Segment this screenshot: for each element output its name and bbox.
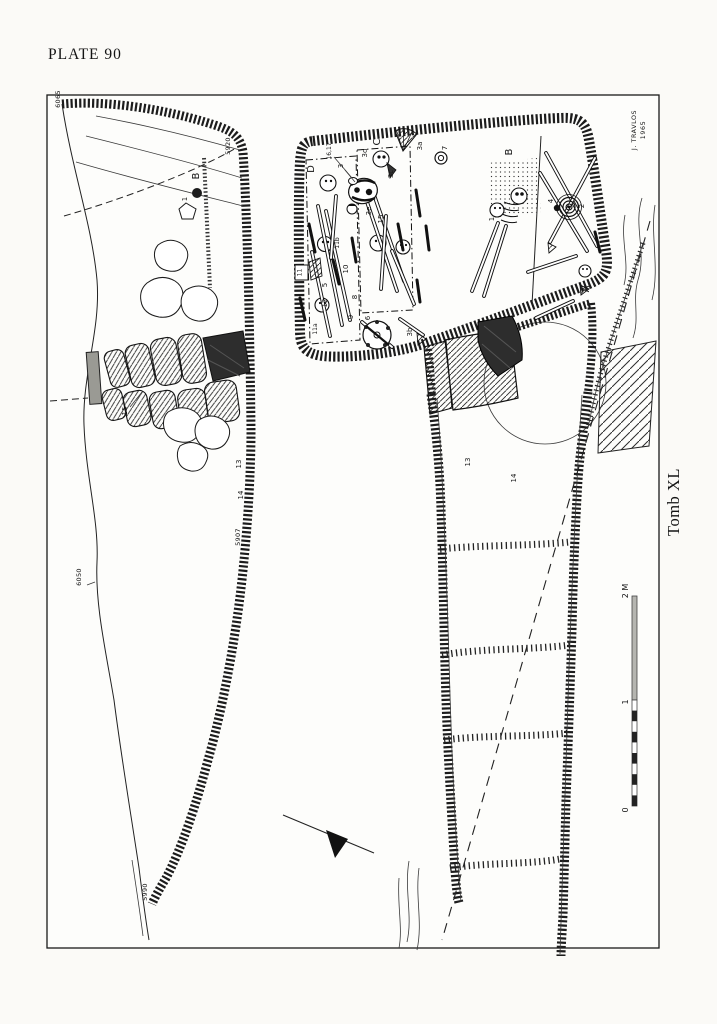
label-find-2: 2 <box>578 204 586 208</box>
label-area-a: A <box>581 285 592 292</box>
label-find-13-upper: 13 <box>235 460 243 469</box>
label-find-11b: 11b <box>334 237 341 249</box>
label-find-3d: 3d <box>361 149 369 158</box>
label-find-12: 12 <box>321 299 329 308</box>
boulder <box>141 277 183 317</box>
label-find-15: 15 <box>377 215 385 224</box>
plate-title: PLATE 90 <box>48 46 122 63</box>
label-find-4: 4 <box>547 198 555 203</box>
elevation-5920: 5920 <box>224 137 232 155</box>
label-find-5: 5 <box>321 283 329 287</box>
label-find-11a: 11a <box>312 323 319 335</box>
label-find-11: 11 <box>297 269 304 277</box>
label-area-d: D <box>306 165 317 173</box>
scale-label-1: 1 <box>621 699 630 704</box>
later-wall-hatched <box>598 341 656 453</box>
label-find-8: 8 <box>351 295 359 299</box>
find-11-object <box>309 258 322 280</box>
label-find-3e: 3e <box>365 207 373 216</box>
label-dromos-14: 14 <box>510 473 518 482</box>
label-find-16-17: 16,17 <box>326 142 333 159</box>
pot-find-6 <box>363 320 391 349</box>
label-find-3c: 3c <box>387 170 395 178</box>
label-find-1: 1 <box>488 217 496 221</box>
label-area-b-upper: B <box>191 172 202 179</box>
scale-label-2m: 2 M <box>621 584 630 599</box>
label-find-15-upper: 15 <box>121 407 129 416</box>
boulder <box>181 286 218 321</box>
label-area-b: B <box>504 148 515 155</box>
plate-frame <box>47 95 659 948</box>
elevation-5907: 5907 <box>234 528 242 546</box>
label-find-3a: 3a <box>416 142 424 151</box>
bead-find-4 <box>554 205 560 211</box>
label-find-14-upper: 14 <box>237 490 245 499</box>
credit-author: J. TRAVLOS <box>631 110 638 151</box>
elevation-6050: 6050 <box>75 568 83 586</box>
boulder <box>195 416 230 449</box>
boulder <box>177 443 207 472</box>
scanned-plate-page: PLATE 90 <box>0 0 717 1024</box>
credit-year: 1965 <box>640 121 647 139</box>
elevation-6065: 6065 <box>54 90 62 108</box>
scale-label-0: 0 <box>621 807 630 812</box>
label-find-7: 7 <box>441 146 449 150</box>
label-find-9: 9 <box>347 315 355 319</box>
label-find-3: 3 <box>337 164 345 168</box>
label-dromos-13: 13 <box>464 458 472 467</box>
label-area-c: C <box>372 138 383 145</box>
label-find-10: 10 <box>342 265 350 274</box>
tomb-plan-drawing: PLATE 90 <box>0 0 717 1024</box>
elevation-5990: 5990 <box>141 883 149 901</box>
stone-marker <box>192 188 202 198</box>
ring-find-7 <box>435 152 447 164</box>
label-find-1-upper: 1 <box>181 197 189 201</box>
scale-bar-upper <box>632 596 637 700</box>
label-find-3b: 3b <box>406 327 414 336</box>
tomb-caption: Tomb XL <box>664 468 683 536</box>
boulder <box>154 240 187 271</box>
label-find-6: 6 <box>364 315 372 320</box>
